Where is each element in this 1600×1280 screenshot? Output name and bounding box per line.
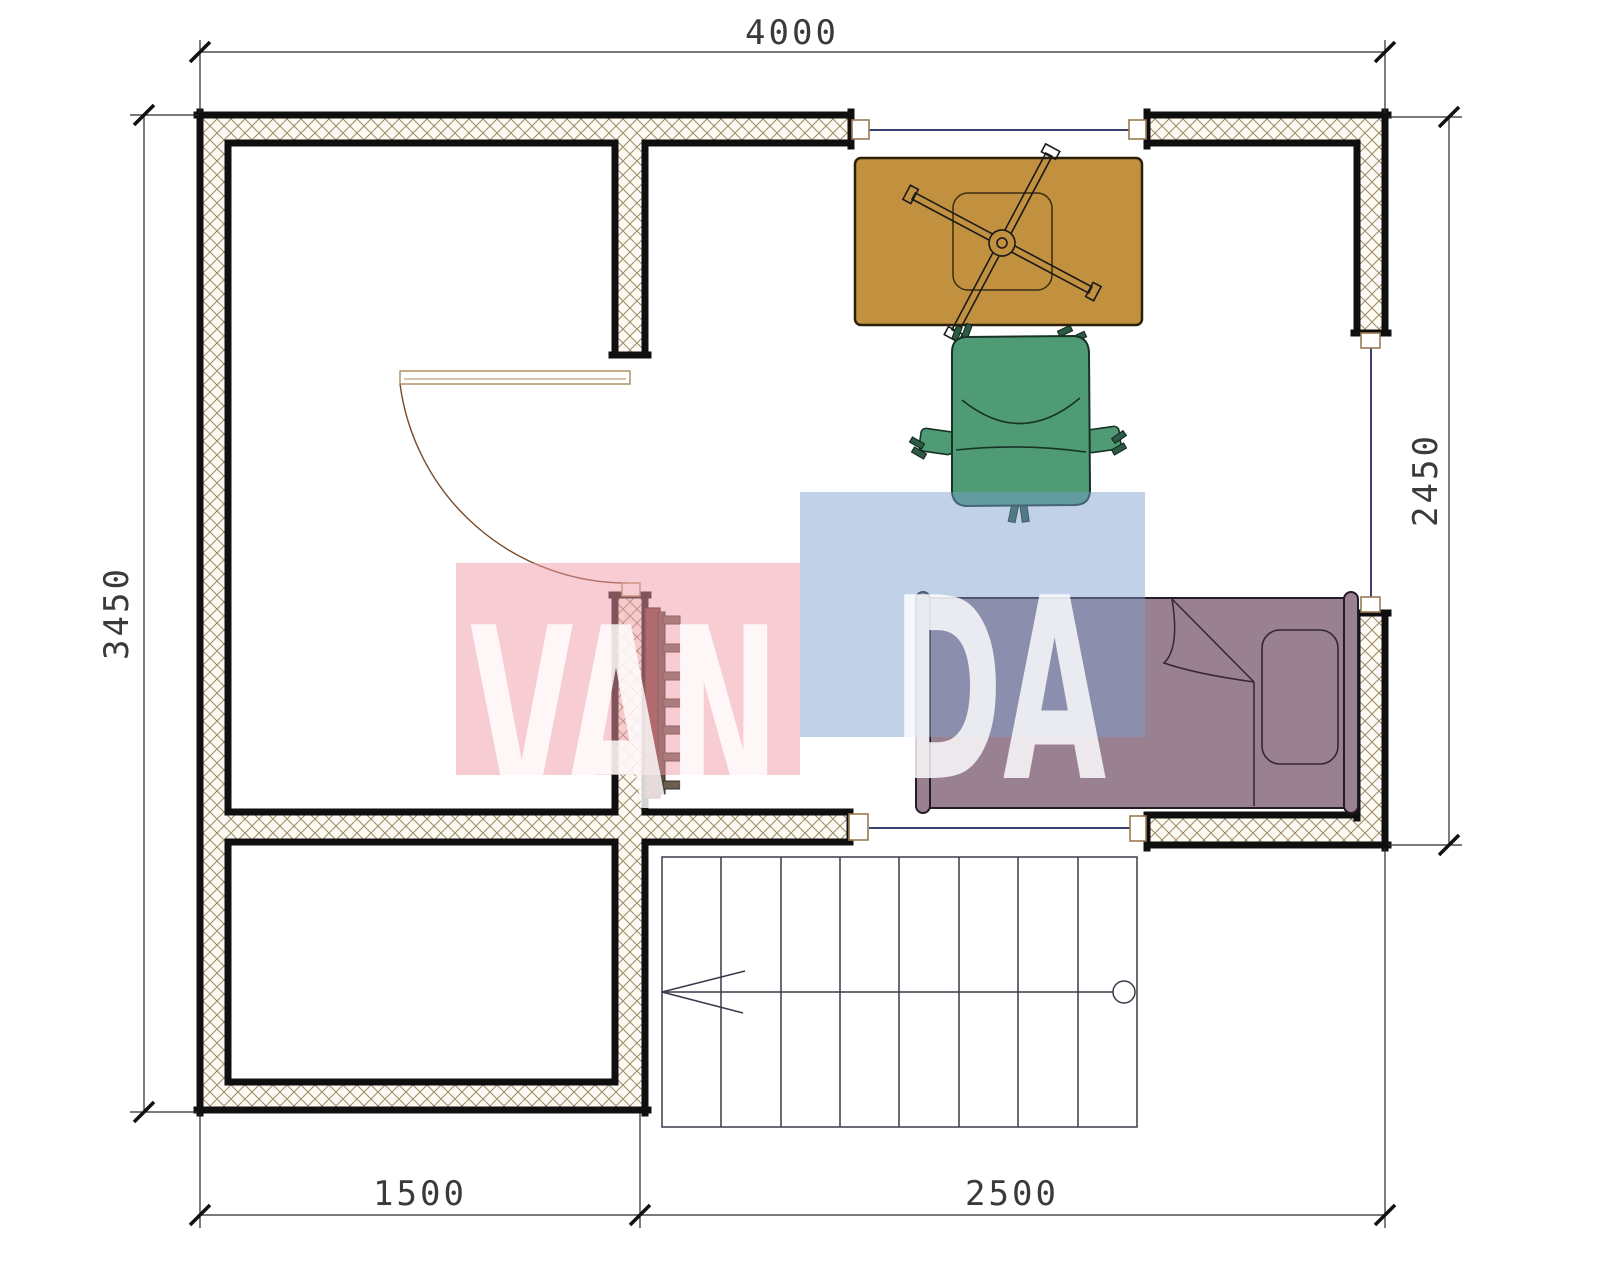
window-jamb-marker bbox=[1361, 597, 1380, 612]
floor-plan-canvas: 4000 3450 2450 1500 2500 VAN DA bbox=[0, 0, 1600, 1280]
wall-top-left bbox=[200, 115, 851, 143]
chair-armrest-left bbox=[918, 428, 955, 456]
wall-middle-vertical-upper bbox=[615, 143, 645, 355]
dim-label-bottom-right: 2500 bbox=[965, 1174, 1059, 1214]
bed-headboard bbox=[1344, 592, 1358, 813]
door-leaf bbox=[400, 371, 630, 384]
window-jamb-marker bbox=[1361, 333, 1380, 348]
dim-label-left: 3450 bbox=[97, 566, 137, 660]
bed-pillow bbox=[1262, 630, 1338, 764]
chair-seat bbox=[952, 336, 1090, 506]
staircase bbox=[662, 857, 1137, 1127]
window-jamb-marker bbox=[1130, 816, 1146, 841]
wall-top-right bbox=[1147, 115, 1388, 143]
door-swing-arc bbox=[400, 384, 628, 583]
wall-right-lower bbox=[1357, 613, 1385, 845]
window-jamb-marker bbox=[1129, 120, 1146, 139]
window-jamb-marker bbox=[852, 120, 869, 139]
wall-left bbox=[200, 115, 228, 1113]
watermark-text-da: DA bbox=[892, 566, 1106, 818]
wall-bottom bbox=[200, 1082, 648, 1110]
staircase-walkline-start bbox=[1113, 981, 1135, 1003]
dim-label-top: 4000 bbox=[745, 13, 839, 53]
dim-label-bottom-left: 1500 bbox=[373, 1174, 467, 1214]
window-jamb-marker bbox=[849, 814, 868, 840]
dim-label-right: 2450 bbox=[1406, 433, 1446, 527]
watermark-text-van: VAN bbox=[470, 596, 779, 848]
wall-right-upper bbox=[1357, 115, 1385, 333]
wall-bedroom-bottom bbox=[1147, 815, 1388, 845]
